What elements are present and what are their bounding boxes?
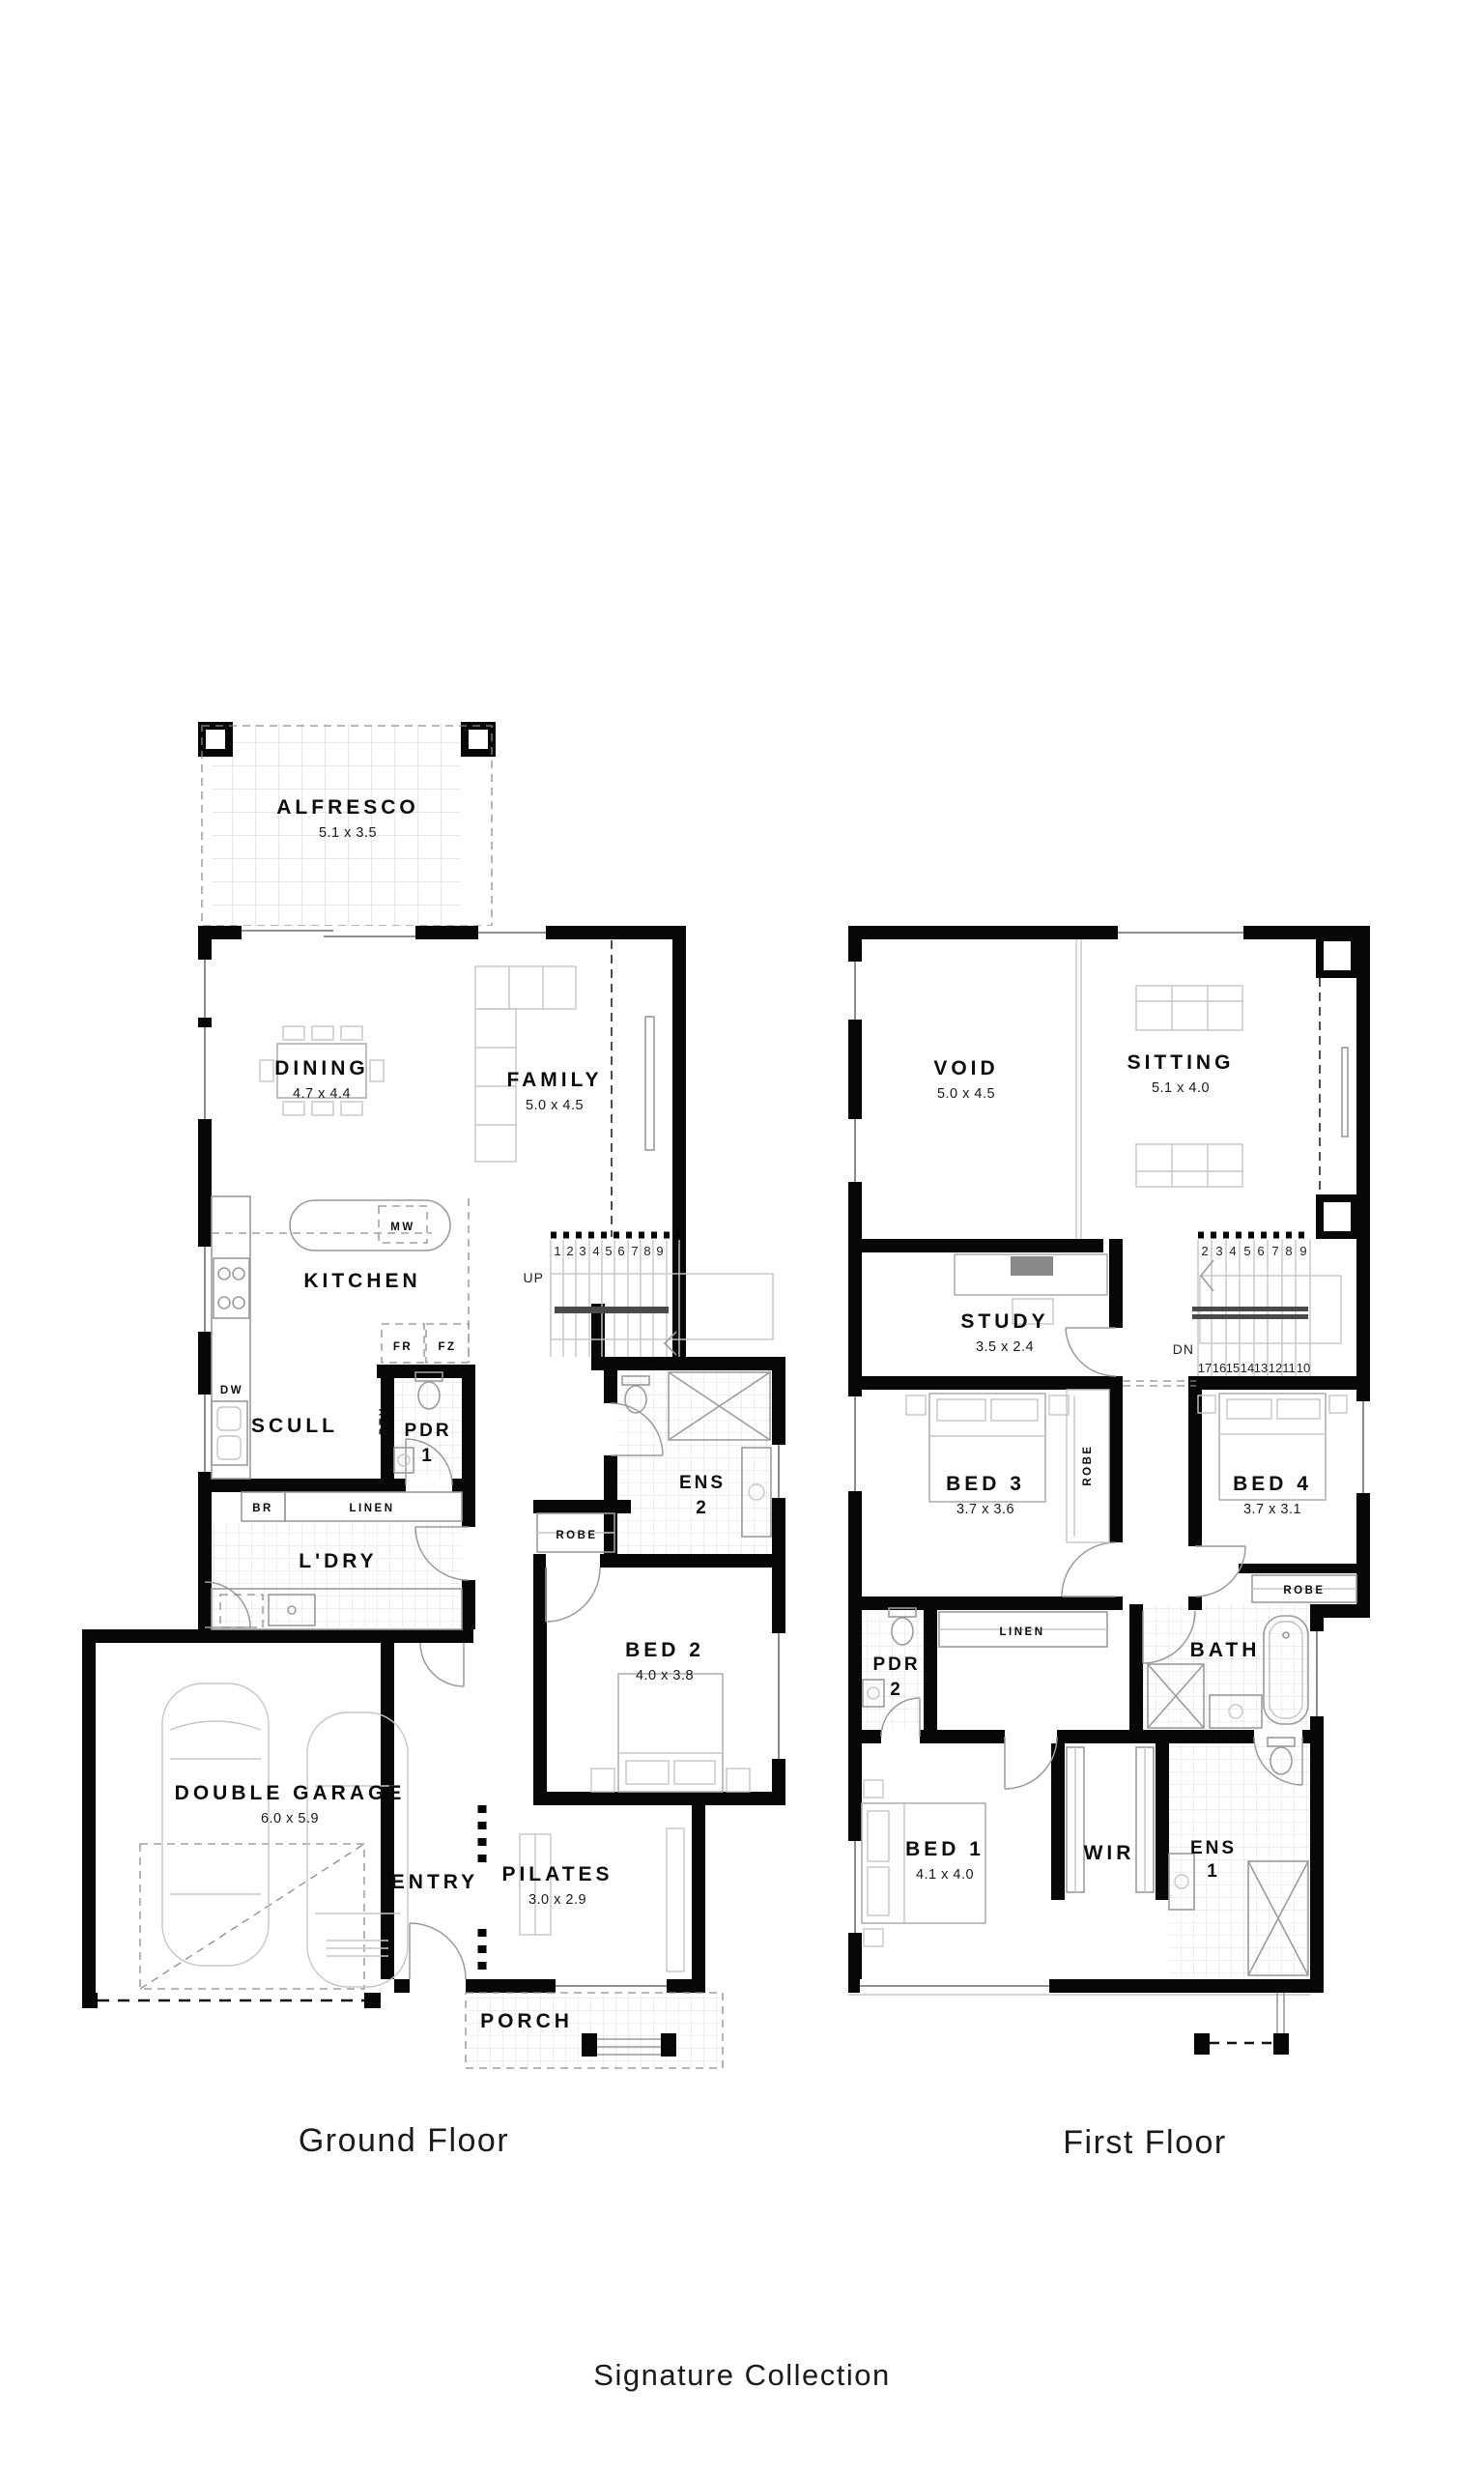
microwave-label: MW bbox=[390, 1222, 414, 1233]
ground-floor-caption: Ground Floor bbox=[299, 2122, 509, 2160]
stair-step-number: 5 bbox=[1243, 1244, 1250, 1258]
wir-label: WIR bbox=[1084, 1842, 1135, 1864]
study-dims: 3.5 x 2.4 bbox=[976, 1339, 1034, 1355]
robe-label: ROBE bbox=[556, 1530, 597, 1541]
entry-label: ENTRY bbox=[391, 1871, 478, 1893]
stair-step-number: 16 bbox=[1213, 1361, 1226, 1375]
linen-label: LINEN bbox=[1000, 1626, 1045, 1638]
pantry-label: PTY bbox=[379, 1406, 390, 1435]
bed3-dims: 3.7 x 3.6 bbox=[956, 1502, 1014, 1517]
dining-dims: 4.7 x 4.4 bbox=[293, 1086, 351, 1102]
stair-step-number: 14 bbox=[1241, 1361, 1254, 1375]
sitting-sofa-icon bbox=[1136, 986, 1242, 1030]
car-icon bbox=[162, 1683, 269, 1966]
void-label: VOID bbox=[933, 1057, 998, 1079]
kitchen-label: KITCHEN bbox=[303, 1270, 420, 1292]
ground-stair-numbers: 1 2 3 4 5 6 7 8 9 bbox=[554, 1244, 663, 1258]
stair-step-number: 7 bbox=[631, 1244, 638, 1258]
bed2-dims: 4.0 x 3.8 bbox=[636, 1668, 694, 1683]
stair-step-number: 4 bbox=[592, 1244, 599, 1258]
cooktop-icon bbox=[214, 1258, 249, 1318]
stair-step-number: 2 bbox=[566, 1244, 573, 1258]
garage-dims: 6.0 x 5.9 bbox=[261, 1811, 319, 1827]
bed4-dims: 3.7 x 3.1 bbox=[1243, 1502, 1301, 1517]
ground-floor-plan: 1 2 3 4 5 6 7 8 9 UP bbox=[82, 722, 785, 2068]
stair-step-number: 4 bbox=[1229, 1244, 1236, 1258]
stair-step-number: 3 bbox=[1215, 1244, 1222, 1258]
first-stairs: 2 3 4 5 6 7 8 9 17 16 15 14 13 12 11 10 … bbox=[1173, 1235, 1341, 1376]
pilates-dims: 3.0 x 2.9 bbox=[528, 1892, 586, 1908]
first-stair-numbers-lower: 17 16 15 14 13 12 11 10 bbox=[1198, 1361, 1310, 1375]
family-label: FAMILY bbox=[506, 1069, 602, 1091]
stair-step-number: 2 bbox=[1201, 1244, 1208, 1258]
scullery-sink-icon bbox=[212, 1401, 247, 1465]
scullery-label: SCULL bbox=[251, 1415, 338, 1437]
bed2-icon bbox=[591, 1674, 750, 1792]
pdr1-number: 1 bbox=[421, 1446, 435, 1466]
stair-step-number: 8 bbox=[1285, 1244, 1292, 1258]
stair-step-number: 5 bbox=[605, 1244, 612, 1258]
laundry-label: L'DRY bbox=[299, 1550, 377, 1572]
pdr1-label: PDR bbox=[404, 1421, 451, 1441]
robe-label: ROBE bbox=[1082, 1444, 1094, 1485]
bed3-label: BED 3 bbox=[946, 1473, 1025, 1495]
stair-direction-label: UP bbox=[524, 1270, 544, 1285]
floorplan-drawing: 1 2 3 4 5 6 7 8 9 UP bbox=[0, 0, 1484, 2474]
stair-step-number: 13 bbox=[1254, 1361, 1268, 1375]
pdr2-number: 2 bbox=[890, 1680, 903, 1700]
collection-title: Signature Collection bbox=[593, 2358, 890, 2393]
stair-direction-label: DN bbox=[1173, 1341, 1194, 1357]
tv-unit-icon bbox=[645, 1017, 654, 1150]
stair-step-number: 3 bbox=[579, 1244, 585, 1258]
stair-step-number: 11 bbox=[1282, 1361, 1296, 1375]
stair-step-number: 8 bbox=[643, 1244, 650, 1258]
floorplan-page: { "colors": {"ink": "#000000", "tile_lin… bbox=[0, 0, 1484, 2474]
ground-stairs: 1 2 3 4 5 6 7 8 9 UP bbox=[524, 1235, 773, 1357]
pilates-label: PILATES bbox=[501, 1863, 613, 1885]
robe-label: ROBE bbox=[1283, 1585, 1325, 1597]
dining-label: DINING bbox=[274, 1057, 369, 1079]
void-dims: 5.0 x 4.5 bbox=[937, 1086, 995, 1102]
pdr2-label: PDR bbox=[872, 1654, 920, 1675]
sitting-dims: 5.1 x 4.0 bbox=[1152, 1080, 1210, 1096]
study-label: STUDY bbox=[960, 1310, 1048, 1333]
fridge-label: FR bbox=[393, 1341, 413, 1353]
broom-label: BR bbox=[252, 1503, 273, 1514]
alfresco-label: ALFRESCO bbox=[276, 796, 419, 819]
balcony-structure bbox=[848, 1993, 1310, 2055]
porch-label: PORCH bbox=[480, 2010, 573, 2032]
linen-label: LINEN bbox=[350, 1503, 395, 1514]
family-dims: 5.0 x 4.5 bbox=[526, 1098, 584, 1113]
sitting-label: SITTING bbox=[1127, 1051, 1235, 1074]
stair-step-number: 12 bbox=[1269, 1361, 1282, 1375]
ens2-label: ENS bbox=[679, 1473, 726, 1493]
stair-step-number: 6 bbox=[1257, 1244, 1264, 1258]
wir-shelves bbox=[1067, 1747, 1154, 1892]
dishwasher-label: DW bbox=[220, 1385, 243, 1396]
stair-step-number: 1 bbox=[554, 1244, 560, 1258]
stair-step-number: 9 bbox=[656, 1244, 663, 1258]
bed1-dims: 4.1 x 4.0 bbox=[916, 1867, 974, 1883]
kitchen-bench-icon bbox=[212, 1196, 250, 1479]
freezer-label: FZ bbox=[438, 1341, 456, 1353]
stair-step-number: 15 bbox=[1226, 1361, 1240, 1375]
garage-label: DOUBLE GARAGE bbox=[175, 1782, 406, 1804]
tv-unit-icon bbox=[1342, 1048, 1348, 1136]
ens2-number: 2 bbox=[696, 1498, 709, 1518]
sitting-sofa-icon bbox=[1136, 1144, 1242, 1187]
bed1-icon bbox=[862, 1780, 985, 1946]
kitchen-island-icon bbox=[290, 1200, 450, 1251]
bed2-label: BED 2 bbox=[625, 1639, 704, 1661]
ens1-label: ENS bbox=[1190, 1838, 1237, 1858]
stair-step-number: 10 bbox=[1297, 1361, 1310, 1375]
alfresco-dims: 5.1 x 3.5 bbox=[319, 825, 377, 841]
stair-step-number: 9 bbox=[1299, 1244, 1306, 1258]
ens1-number: 1 bbox=[1207, 1861, 1220, 1882]
bed1-label: BED 1 bbox=[905, 1838, 985, 1860]
stair-step-number: 17 bbox=[1198, 1361, 1212, 1375]
stair-step-number: 7 bbox=[1271, 1244, 1278, 1258]
stair-step-number: 6 bbox=[617, 1244, 624, 1258]
bed4-label: BED 4 bbox=[1233, 1473, 1312, 1495]
family-sofa-icon bbox=[475, 966, 576, 1162]
first-floor-plan: 2 3 4 5 6 7 8 9 17 16 15 14 13 12 11 10 … bbox=[848, 926, 1370, 2055]
bath-label: BATH bbox=[1190, 1639, 1261, 1661]
first-floor-caption: First Floor bbox=[1063, 2124, 1227, 2162]
